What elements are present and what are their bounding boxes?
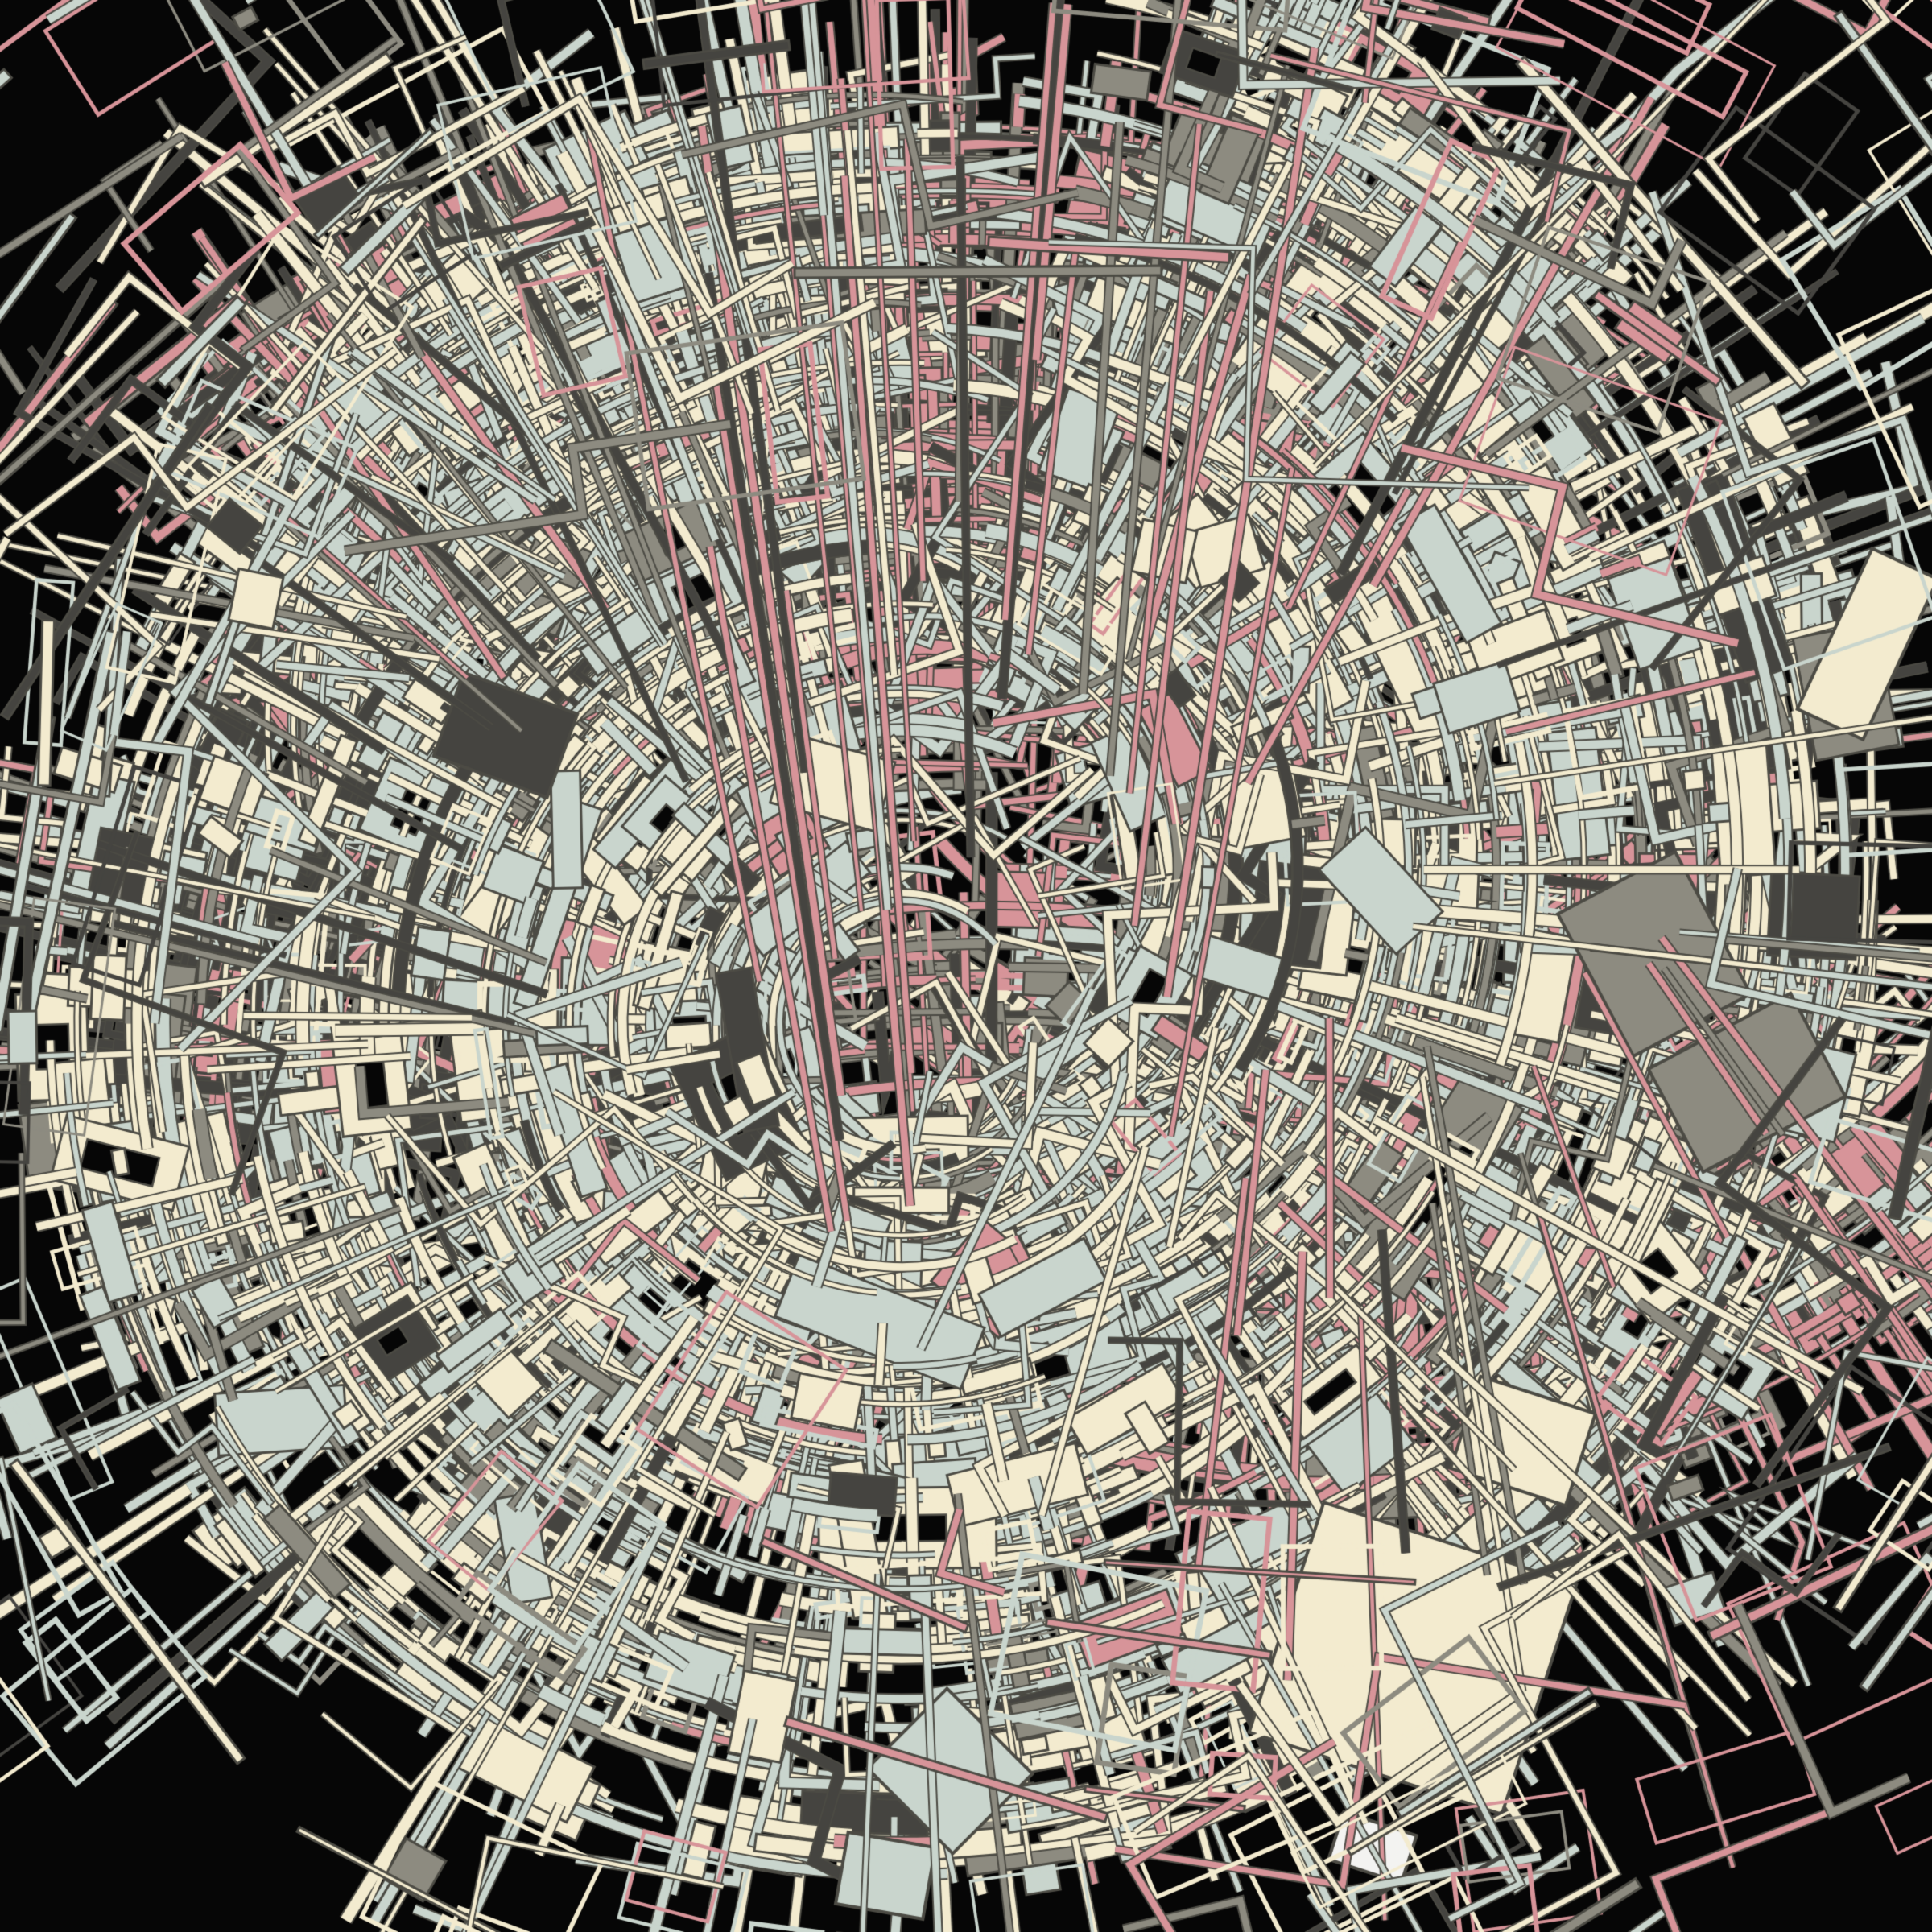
artwork-stage — [0, 0, 1932, 1932]
generative-art-canvas — [0, 0, 1932, 1932]
